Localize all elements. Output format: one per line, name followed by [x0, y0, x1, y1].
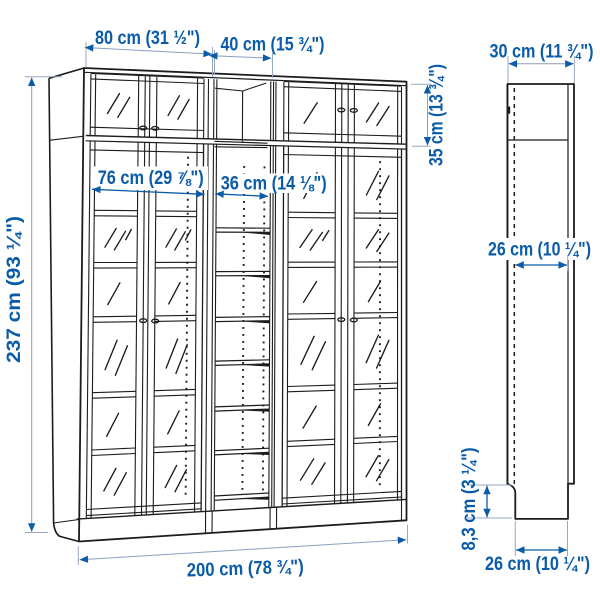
svg-text:26 cm (10 ¼"): 26 cm (10 ¼"): [485, 554, 590, 575]
svg-text:36 cm (14 ⅛"): 36 cm (14 ⅛"): [221, 173, 327, 194]
svg-text:8,3 cm (3 ¼"): 8,3 cm (3 ¼"): [459, 448, 480, 551]
svg-text:200 cm (78 ¾"): 200 cm (78 ¾"): [186, 556, 304, 581]
svg-text:237 cm (93 ¼"): 237 cm (93 ¼"): [4, 216, 25, 363]
svg-text:26 cm (10 ¼"): 26 cm (10 ¼"): [488, 240, 591, 261]
svg-text:76 cm (29 ⅞"): 76 cm (29 ⅞"): [98, 168, 204, 189]
svg-text:40 cm (15 ¾"): 40 cm (15 ¾"): [221, 34, 325, 55]
svg-text:30 cm (11 ¾"): 30 cm (11 ¾"): [490, 42, 594, 63]
svg-text:35 cm (13 ¾"): 35 cm (13 ¾"): [427, 64, 448, 166]
svg-text:80 cm (31 ½"): 80 cm (31 ½"): [95, 28, 200, 49]
